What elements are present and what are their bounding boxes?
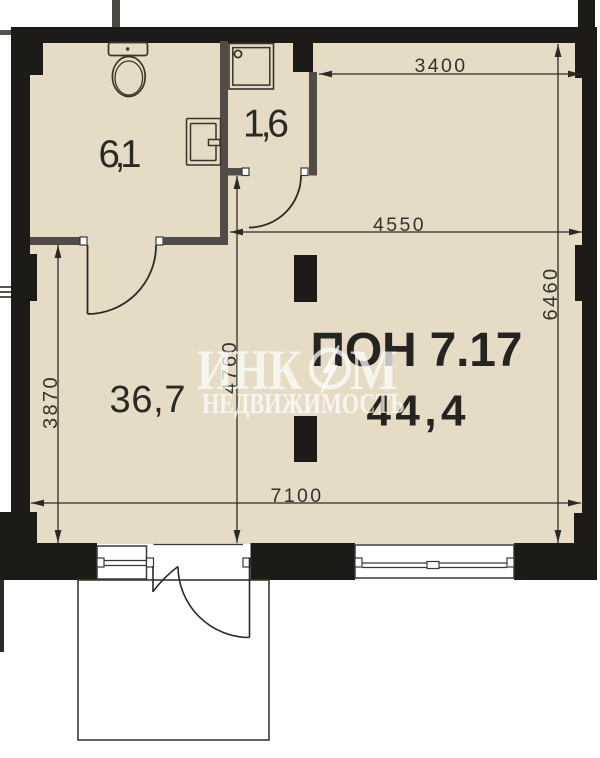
svg-text:36,7: 36,7	[110, 379, 186, 421]
svg-text:3870: 3870	[40, 375, 62, 429]
svg-text:6,1: 6,1	[99, 133, 142, 176]
svg-text:3400: 3400	[415, 55, 468, 77]
svg-text:7100: 7100	[271, 485, 324, 507]
svg-text:1,6: 1,6	[243, 103, 289, 146]
svg-text:6460: 6460	[540, 266, 562, 320]
svg-text:НЕДВИЖИМОСТЬ: НЕДВИЖИМОСТЬ	[202, 389, 405, 420]
svg-text:ПОН 7.17: ПОН 7.17	[311, 324, 523, 377]
svg-text:4550: 4550	[373, 214, 426, 236]
